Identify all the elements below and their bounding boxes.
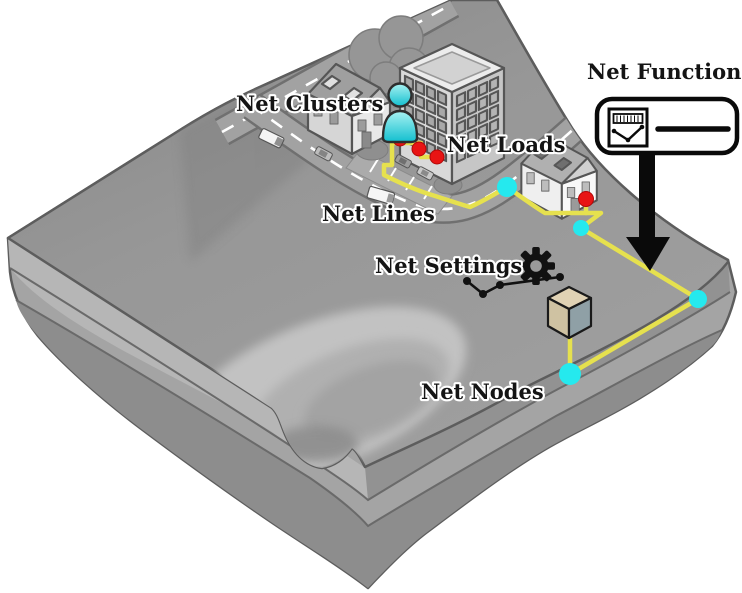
gear-icon (517, 247, 555, 285)
net-node-dot (497, 177, 517, 197)
label-net-loads: Net Loads (447, 132, 565, 157)
cube-icon (548, 287, 591, 338)
net-load-dot (412, 142, 426, 156)
meter-icon (609, 109, 647, 146)
door (362, 132, 371, 148)
net-diagram-canvas: Net Functions Net Clusters Net Loads Net… (0, 0, 742, 593)
label-net-nodes: Net Nodes (421, 379, 544, 404)
label-net-lines: Net Lines (322, 201, 435, 226)
label-net-settings: Net Settings (375, 253, 522, 278)
apartment-building (400, 44, 504, 184)
net-load-dot (430, 150, 444, 164)
net-diagram: Net Functions Net Clusters Net Loads Net… (0, 0, 742, 593)
net-load-dot (579, 192, 594, 207)
label-net-clusters: Net Clusters (236, 91, 383, 116)
functions-box-icon (597, 99, 737, 153)
net-node-dot (689, 290, 707, 308)
net-node-dot (559, 363, 581, 385)
label-net-functions: Net Functions (587, 59, 742, 84)
net-node-dot (573, 220, 589, 236)
